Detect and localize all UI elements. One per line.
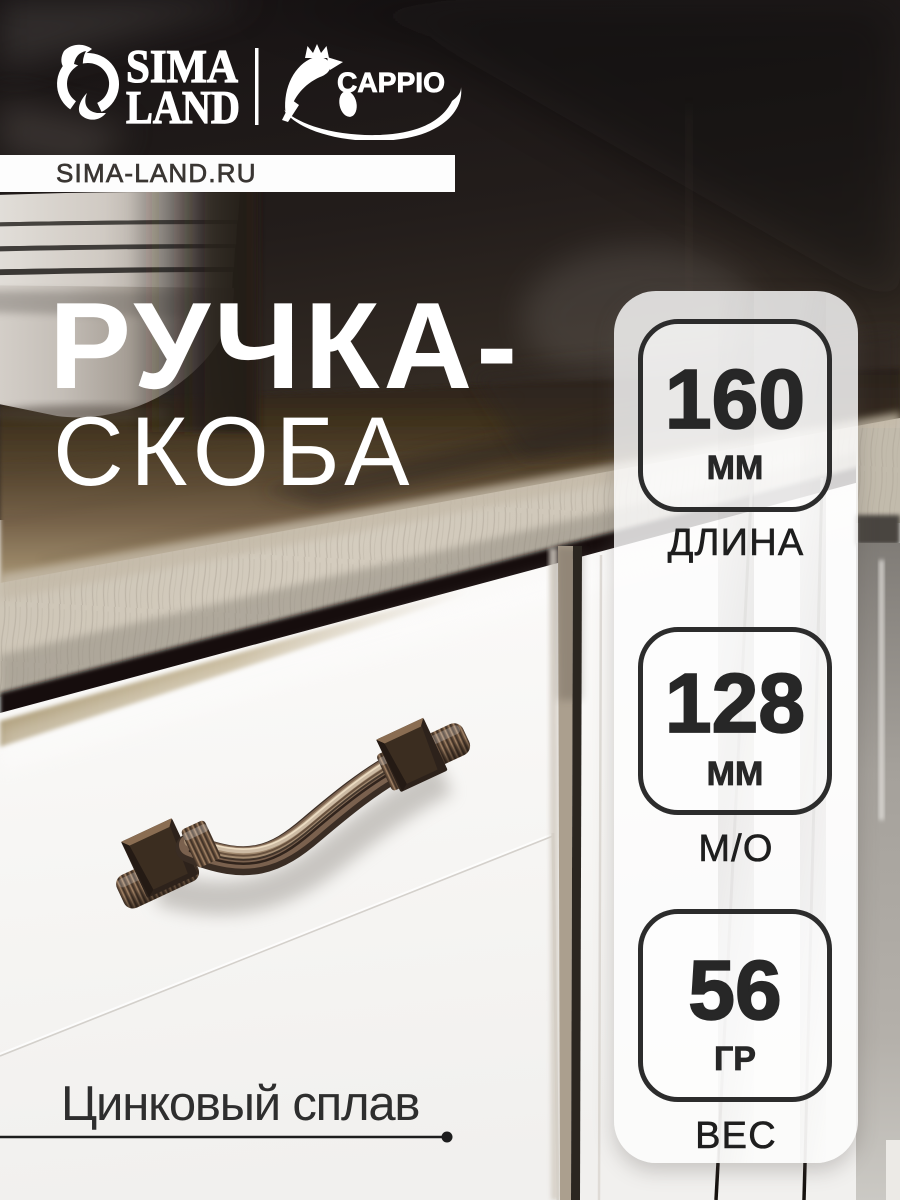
svg-text:LAND: LAND (126, 82, 240, 134)
svg-text:CAPPIO: CAPPIO (337, 67, 445, 98)
